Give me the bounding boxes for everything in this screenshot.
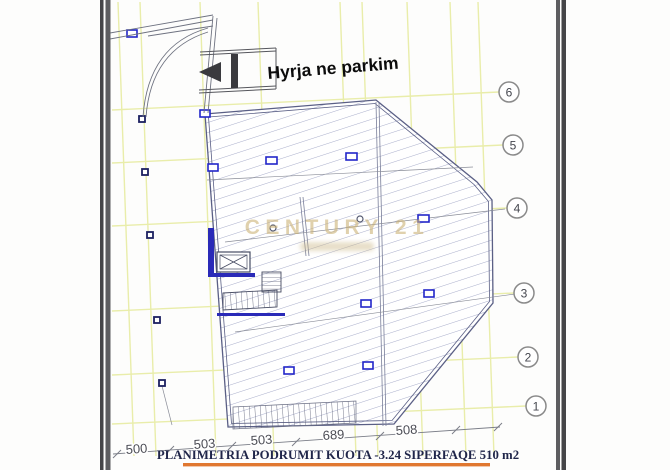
grid-bubble-3: 3 bbox=[514, 283, 534, 303]
column-marker bbox=[266, 157, 277, 164]
grid-bubble-6: 6 bbox=[499, 82, 519, 102]
column-marker bbox=[208, 164, 218, 171]
title-underline bbox=[183, 463, 490, 466]
grid-bubble-label: 3 bbox=[521, 287, 528, 301]
grid-bubbles: 6 5 4 3 2 1 bbox=[499, 82, 546, 416]
grid-bubble-1: 1 bbox=[526, 396, 546, 416]
left-frame-bar-inner bbox=[106, 0, 111, 470]
title-block: PLANIMETRIA PODRUMIT KUOTA -3.24 SIPERFA… bbox=[157, 448, 519, 466]
dimension-label: 508 bbox=[395, 422, 418, 438]
stair-wall-blue-bottom bbox=[217, 313, 285, 316]
column-marker bbox=[346, 153, 357, 160]
grid-line-v bbox=[140, 2, 156, 456]
stair-run-treads bbox=[223, 290, 277, 310]
grid-bubble-2: 2 bbox=[518, 347, 538, 367]
dimension-label: 500 bbox=[125, 441, 148, 457]
node-square bbox=[147, 232, 153, 238]
left-frame-bar bbox=[100, 0, 104, 470]
watermark-brand-text: CENTURY 21 bbox=[245, 216, 430, 239]
dimension-label: 503 bbox=[250, 432, 273, 448]
grid-line-v bbox=[118, 2, 134, 456]
watermark-subtext-illegible bbox=[300, 242, 374, 251]
stair-wall-blue-horizontal bbox=[208, 273, 255, 277]
column-marker bbox=[363, 362, 373, 369]
entrance-annotation: Hyrja ne parkim bbox=[267, 53, 399, 83]
ramp-wall-bar bbox=[231, 54, 238, 88]
title-text: PLANIMETRIA PODRUMIT KUOTA -3.24 SIPERFA… bbox=[157, 448, 519, 462]
node-square bbox=[159, 380, 165, 386]
column-marker bbox=[424, 290, 434, 297]
grid-bubble-4: 4 bbox=[507, 198, 527, 218]
grid-bubble-5: 5 bbox=[503, 135, 523, 155]
stair-side-run bbox=[262, 272, 281, 292]
grid-bubble-label: 2 bbox=[525, 351, 532, 365]
stair-wall-blue-vertical bbox=[208, 228, 214, 277]
grid-bubble-label: 4 bbox=[514, 202, 521, 216]
right-frame-bar bbox=[562, 0, 567, 470]
grid-bubble-label: 6 bbox=[506, 86, 513, 100]
right-frame-bar-inner bbox=[556, 0, 560, 470]
floorplan-drawing: 6 5 4 3 2 1 bbox=[0, 0, 670, 470]
grid-bubble-label: 5 bbox=[510, 139, 517, 153]
node-square bbox=[142, 169, 148, 175]
column-marker bbox=[361, 300, 371, 307]
entrance-structures bbox=[110, 15, 217, 117]
dimension-label: 689 bbox=[322, 427, 345, 443]
door-swing-arc bbox=[146, 32, 208, 117]
door-swing-arc bbox=[143, 28, 208, 117]
node-square bbox=[154, 317, 160, 323]
scanned-floorplan-page: 6 5 4 3 2 1 bbox=[0, 0, 670, 470]
grid-bubble-label: 1 bbox=[533, 400, 540, 414]
column-marker bbox=[284, 367, 294, 374]
node-square bbox=[139, 116, 145, 122]
